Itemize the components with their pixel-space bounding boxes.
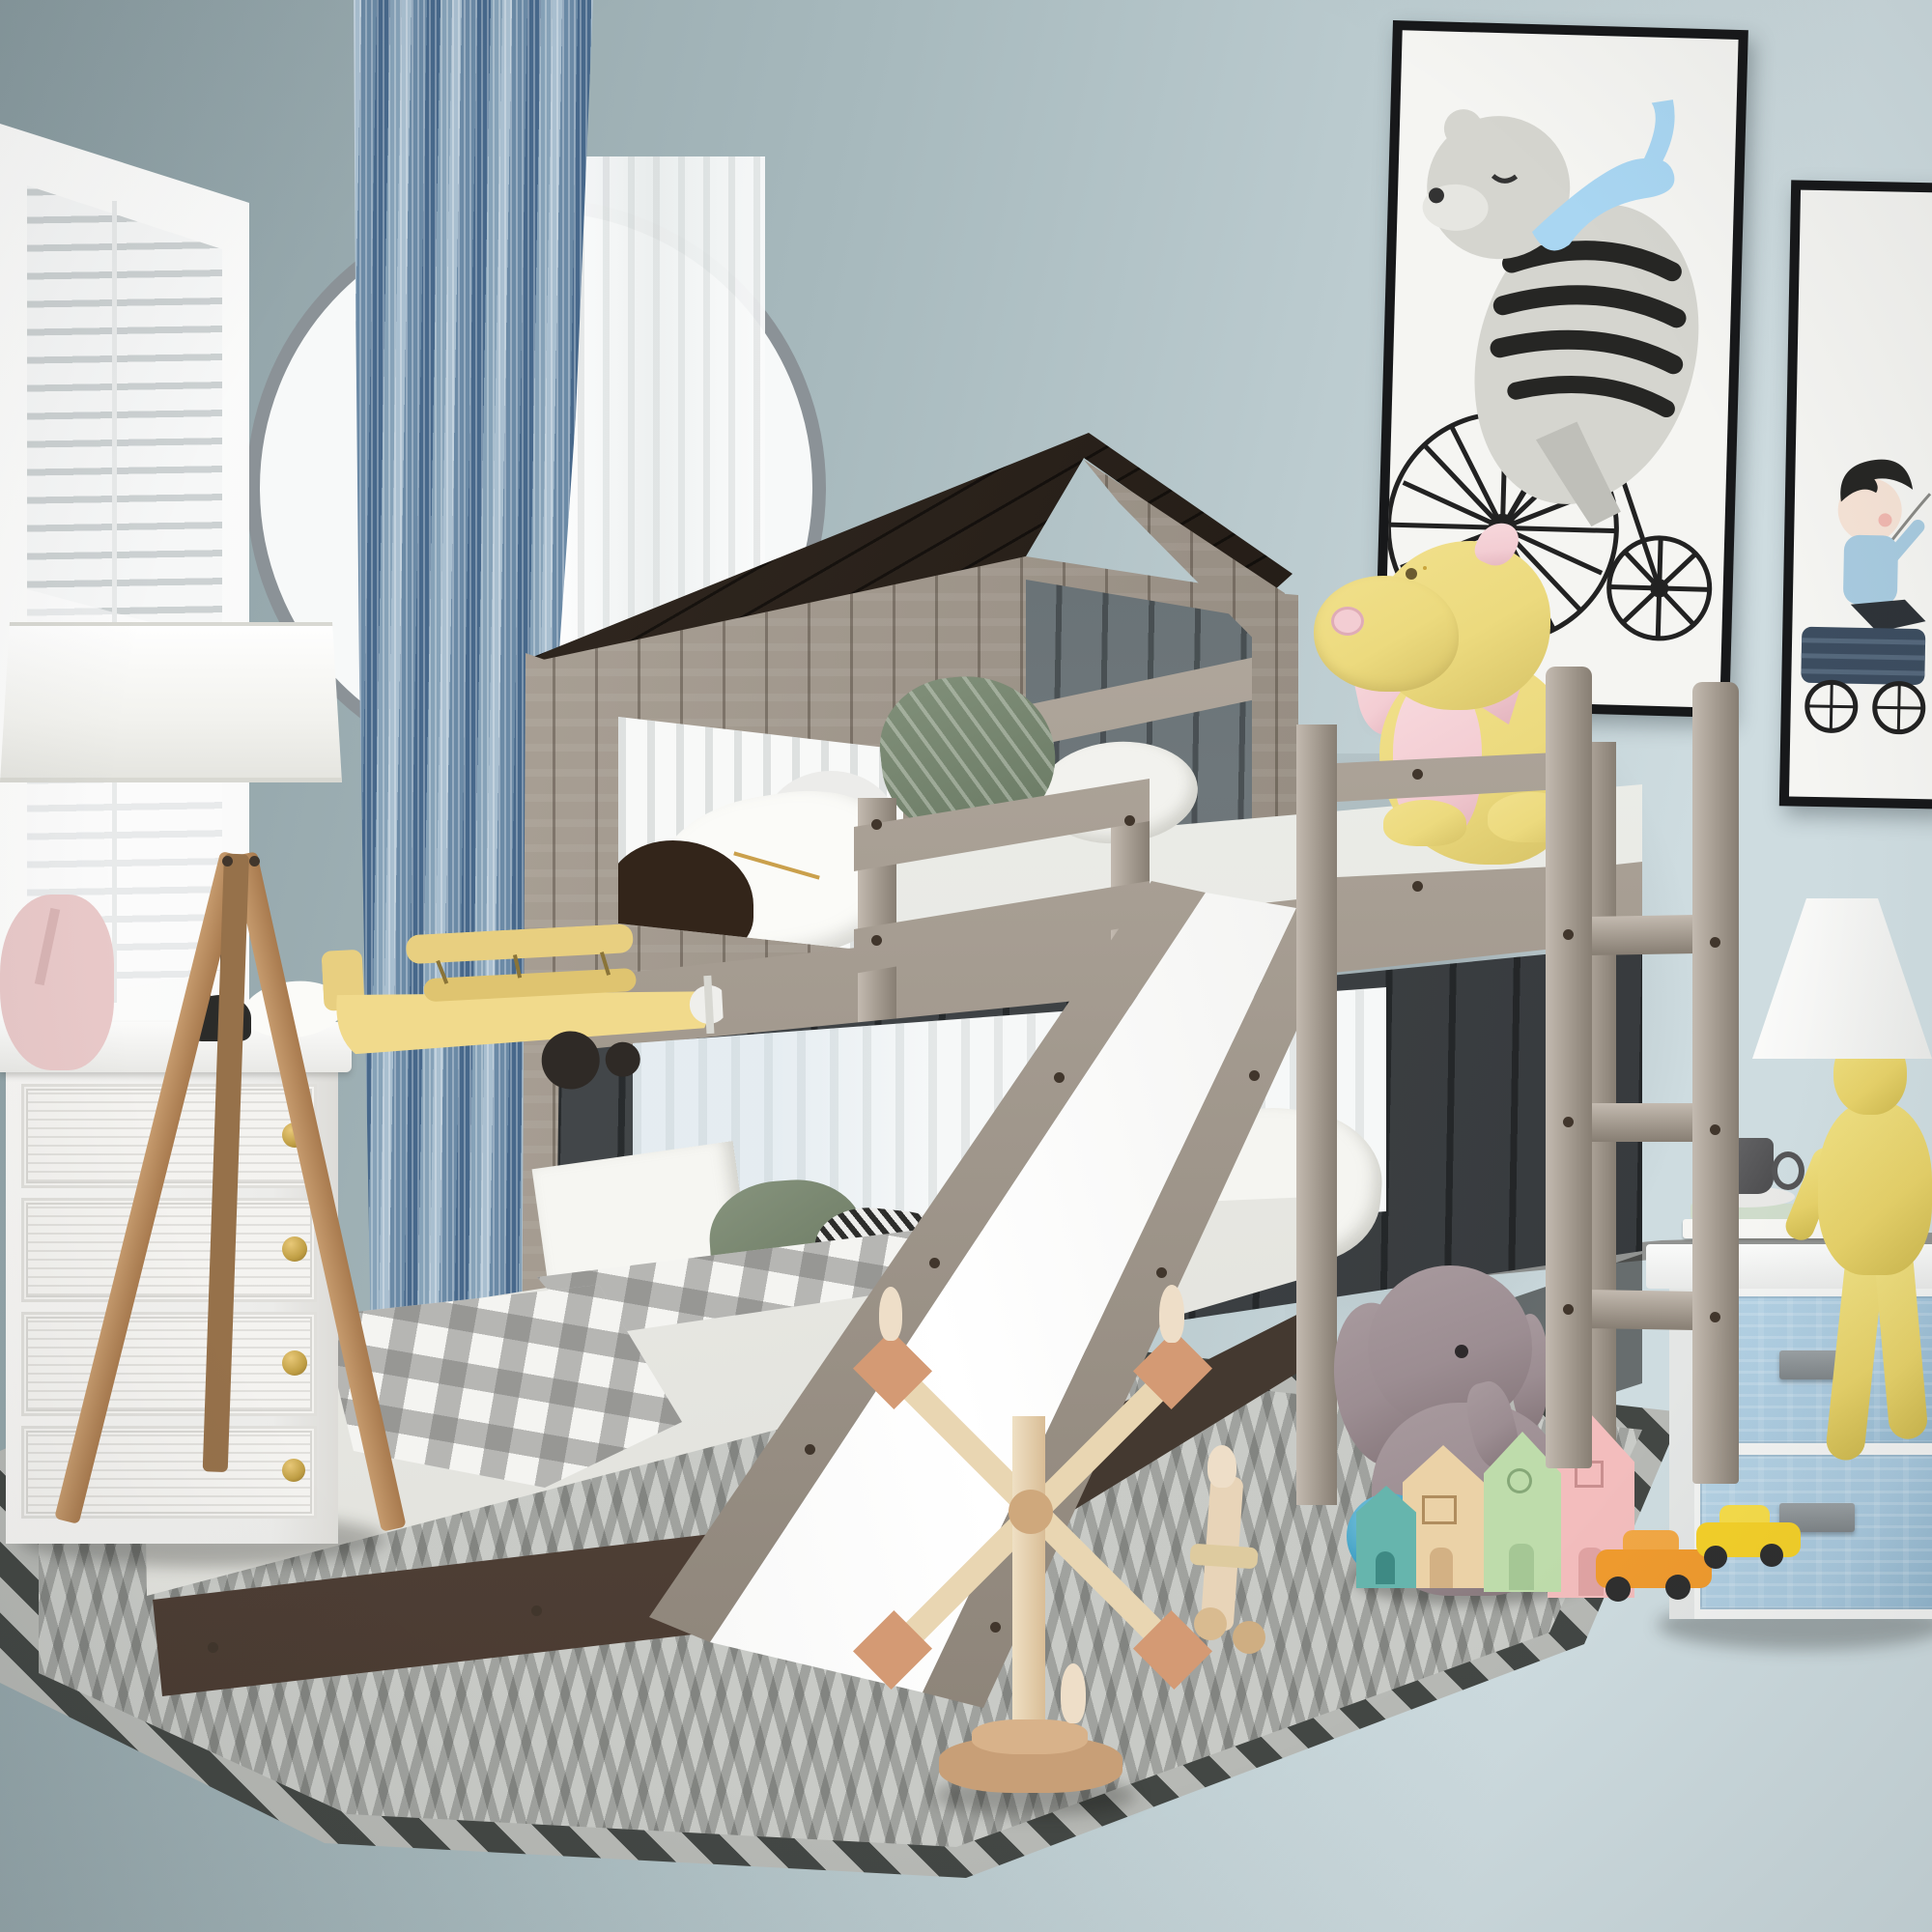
vignette xyxy=(0,0,1932,1932)
bedroom-scene xyxy=(0,0,1932,1932)
